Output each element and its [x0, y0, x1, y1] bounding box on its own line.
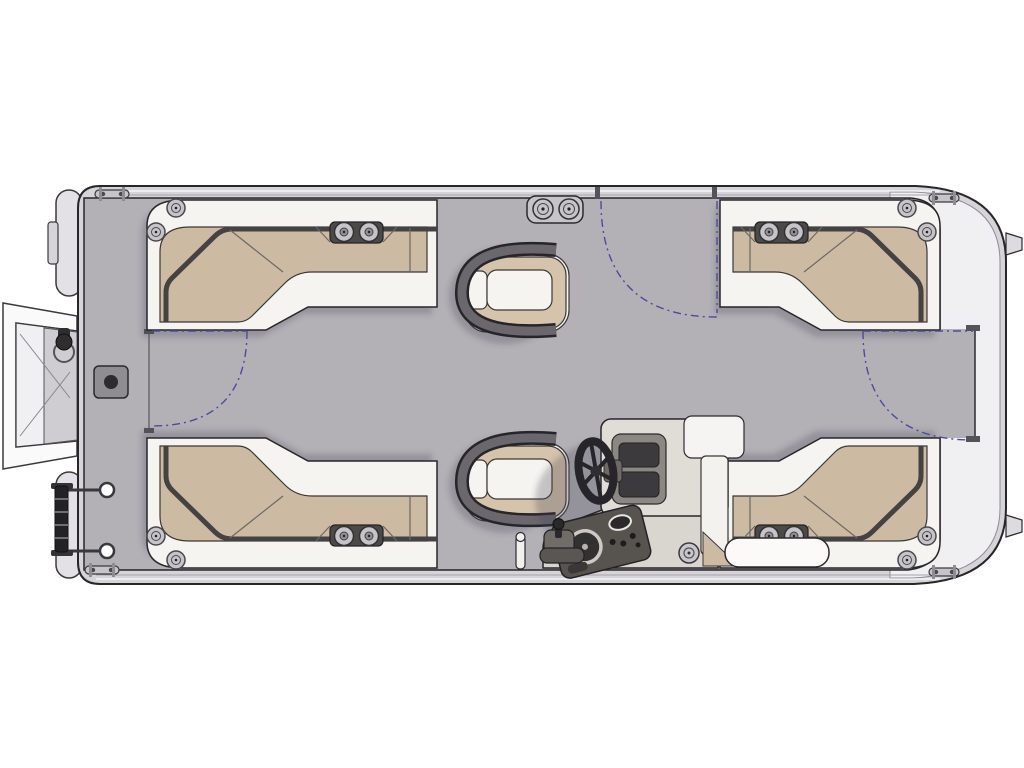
gate-post	[966, 436, 980, 442]
grab-handle	[100, 483, 114, 497]
ski-pylon	[516, 533, 525, 570]
dash-slot	[619, 443, 659, 467]
stowed-cushion	[725, 538, 829, 567]
console-windshield	[684, 416, 744, 458]
motor-mount-tabs	[1006, 233, 1022, 537]
pontoon-floorplan-page	[0, 0, 1024, 768]
deck-cap	[679, 543, 699, 563]
gate-post	[966, 325, 980, 331]
bow-gate-corridor	[938, 329, 975, 438]
gate-post	[712, 187, 717, 199]
cup-holder-pod	[527, 196, 583, 223]
swim-platform	[3, 303, 77, 469]
deck-access-pad	[94, 366, 128, 398]
ladder-body	[55, 486, 68, 552]
dash-slot	[619, 472, 659, 497]
grab-handle	[100, 544, 114, 558]
gate-post	[595, 187, 600, 199]
pontoon-floorplan	[0, 0, 1024, 768]
captain-chair-port	[449, 248, 569, 344]
